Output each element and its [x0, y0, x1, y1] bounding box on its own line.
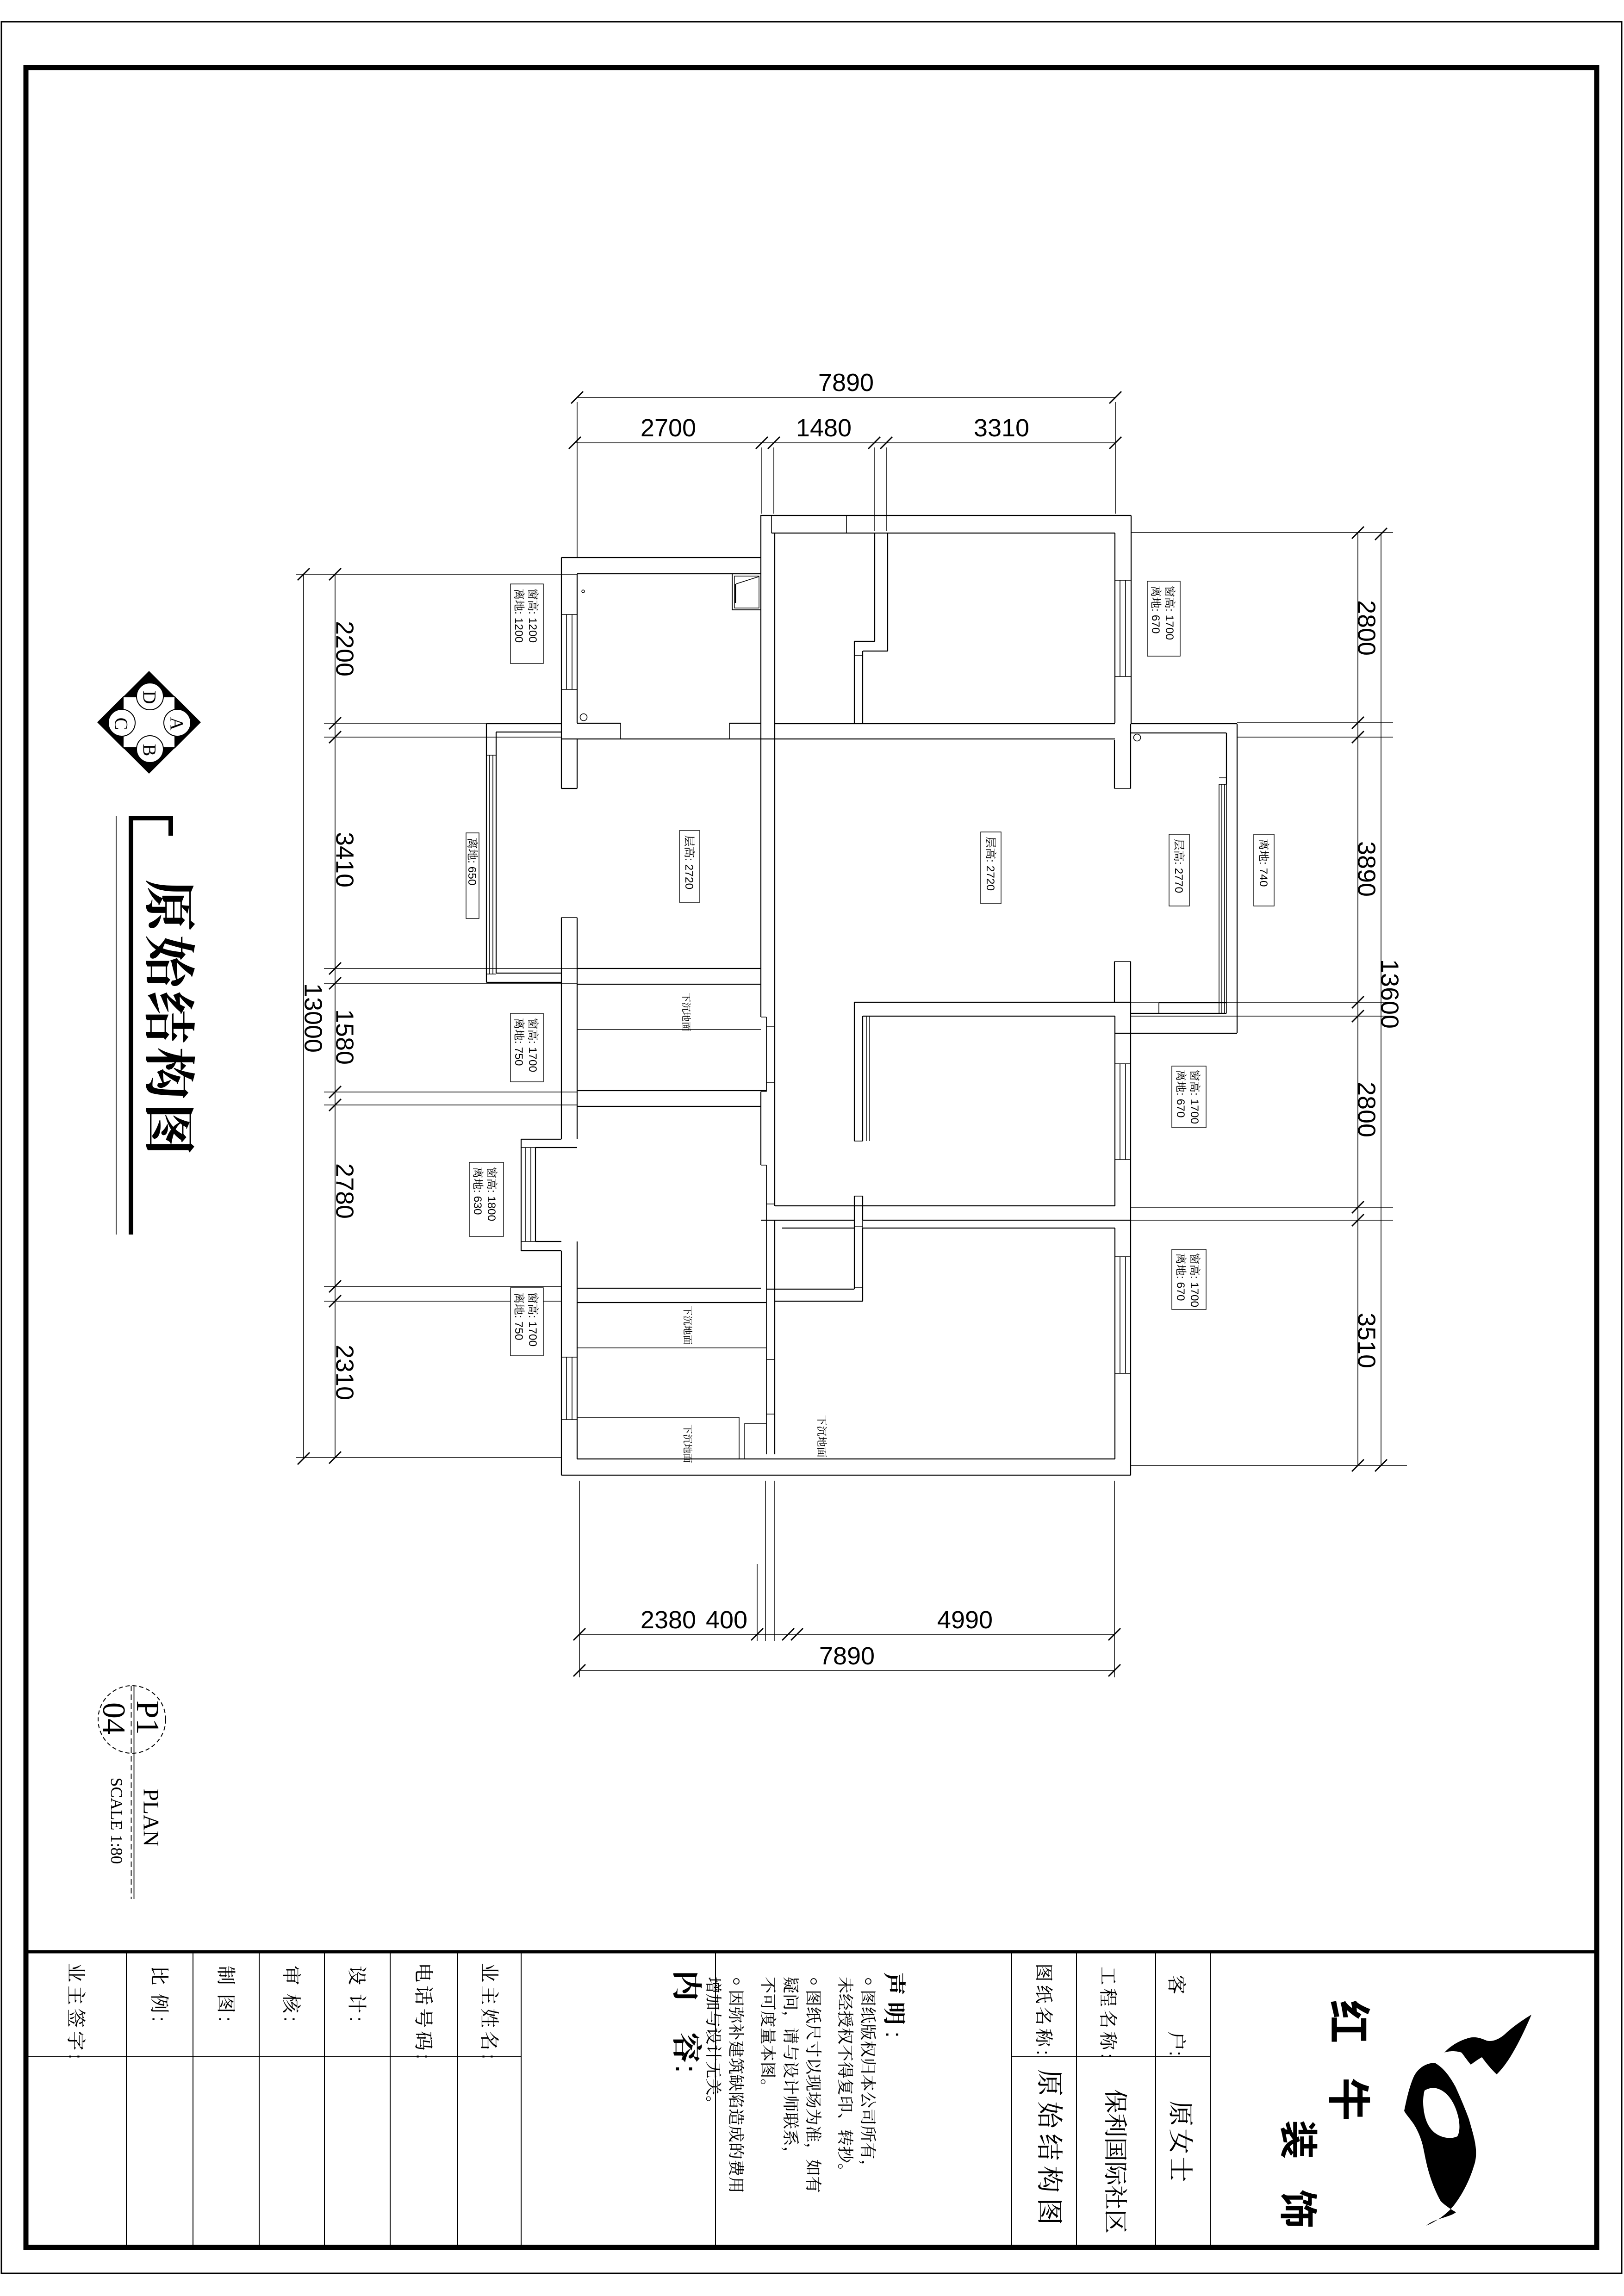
svg-text:13600: 13600: [1376, 959, 1404, 1029]
svg-text:7890: 7890: [819, 1642, 875, 1670]
svg-text::: :: [1166, 2051, 1188, 2056]
svg-text:B: B: [139, 744, 160, 757]
svg-text:: 1200: : 1200: [512, 611, 525, 643]
svg-text:2200: 2200: [331, 621, 359, 676]
svg-text:3410: 3410: [331, 832, 359, 887]
svg-text:2780: 2780: [331, 1163, 359, 1219]
svg-text:: 670: : 670: [1174, 1092, 1187, 1118]
svg-text::: :: [1097, 2053, 1118, 2058]
svg-text:: 1700: : 1700: [1163, 608, 1176, 640]
svg-text:3890: 3890: [1353, 841, 1381, 897]
svg-text:3510: 3510: [1353, 1313, 1381, 1368]
svg-text:13000: 13000: [299, 983, 327, 1053]
svg-text::: :: [215, 2017, 237, 2022]
svg-text::: :: [670, 2065, 704, 2073]
svg-text:7890: 7890: [818, 369, 874, 397]
svg-text::: :: [413, 2054, 435, 2060]
svg-text:: 740: : 740: [1257, 862, 1269, 887]
svg-text:: 630: : 630: [471, 1190, 484, 1215]
svg-text::: :: [881, 2031, 907, 2038]
svg-text::: :: [65, 2054, 87, 2060]
svg-text:1480: 1480: [796, 414, 852, 442]
svg-text::: :: [479, 2054, 500, 2060]
svg-text:: 750: : 750: [512, 1041, 525, 1066]
svg-text:2310: 2310: [331, 1345, 359, 1400]
svg-text:: 1200: : 1200: [526, 611, 539, 643]
svg-text:A: A: [167, 717, 187, 731]
svg-text:4990: 4990: [937, 1606, 993, 1634]
svg-text:2700: 2700: [641, 414, 696, 442]
svg-text:400: 400: [706, 1606, 747, 1634]
svg-text:2800: 2800: [1353, 600, 1381, 656]
svg-text:: 2770: : 2770: [1172, 862, 1185, 893]
svg-text:2380: 2380: [641, 1606, 696, 1634]
svg-text::: :: [346, 2017, 368, 2022]
svg-text:P1: P1: [130, 1700, 165, 1735]
svg-text:: 1700: : 1700: [526, 1041, 539, 1072]
svg-text:: 670: : 670: [1174, 1276, 1187, 1301]
svg-text:1580: 1580: [331, 1009, 359, 1065]
svg-text:: 1700: : 1700: [1188, 1092, 1201, 1124]
svg-text:3310: 3310: [974, 414, 1029, 442]
svg-text::: :: [149, 2017, 170, 2022]
svg-text:: 2720: : 2720: [984, 859, 996, 891]
svg-text:2800: 2800: [1353, 1082, 1381, 1137]
svg-text:PLAN: PLAN: [139, 1788, 163, 1846]
svg-text:C: C: [111, 718, 132, 730]
svg-text::: :: [280, 2017, 302, 2022]
svg-text::: :: [1033, 2050, 1053, 2055]
svg-text:: 1700: : 1700: [1188, 1276, 1201, 1307]
svg-text:D: D: [139, 691, 160, 704]
svg-text:SCALE 1:80: SCALE 1:80: [107, 1777, 126, 1864]
svg-text:: 1800: : 1800: [485, 1190, 498, 1221]
svg-text:04: 04: [96, 1702, 131, 1735]
svg-text:: 1700: : 1700: [526, 1315, 539, 1347]
svg-text:: 750: : 750: [512, 1315, 525, 1340]
svg-text:: 2720: : 2720: [683, 858, 695, 889]
svg-text:: 670: : 670: [1149, 608, 1162, 634]
svg-text:: 650: : 650: [466, 860, 478, 886]
